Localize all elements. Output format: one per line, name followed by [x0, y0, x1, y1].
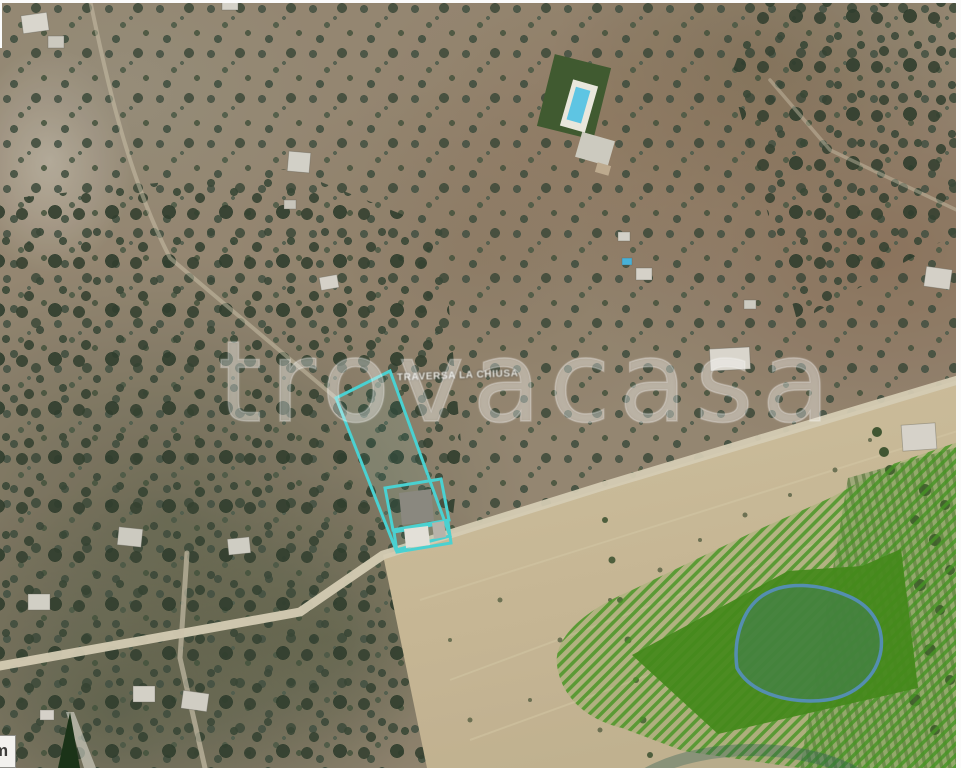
- top-border: [0, 0, 961, 3]
- watermark: trovacasa: [218, 308, 958, 458]
- small-pool: [622, 258, 632, 265]
- partial-label-text: m: [0, 741, 8, 760]
- satellite-map: TRAVERSA LA CHIUSA trovacasa m: [0, 0, 961, 768]
- swimming-pool-compound: [537, 54, 615, 176]
- partial-map-label: m: [0, 735, 16, 768]
- left-border: [0, 0, 2, 48]
- pond-outline: [736, 585, 881, 701]
- cypress-tree: [58, 712, 96, 768]
- right-border: [956, 0, 961, 768]
